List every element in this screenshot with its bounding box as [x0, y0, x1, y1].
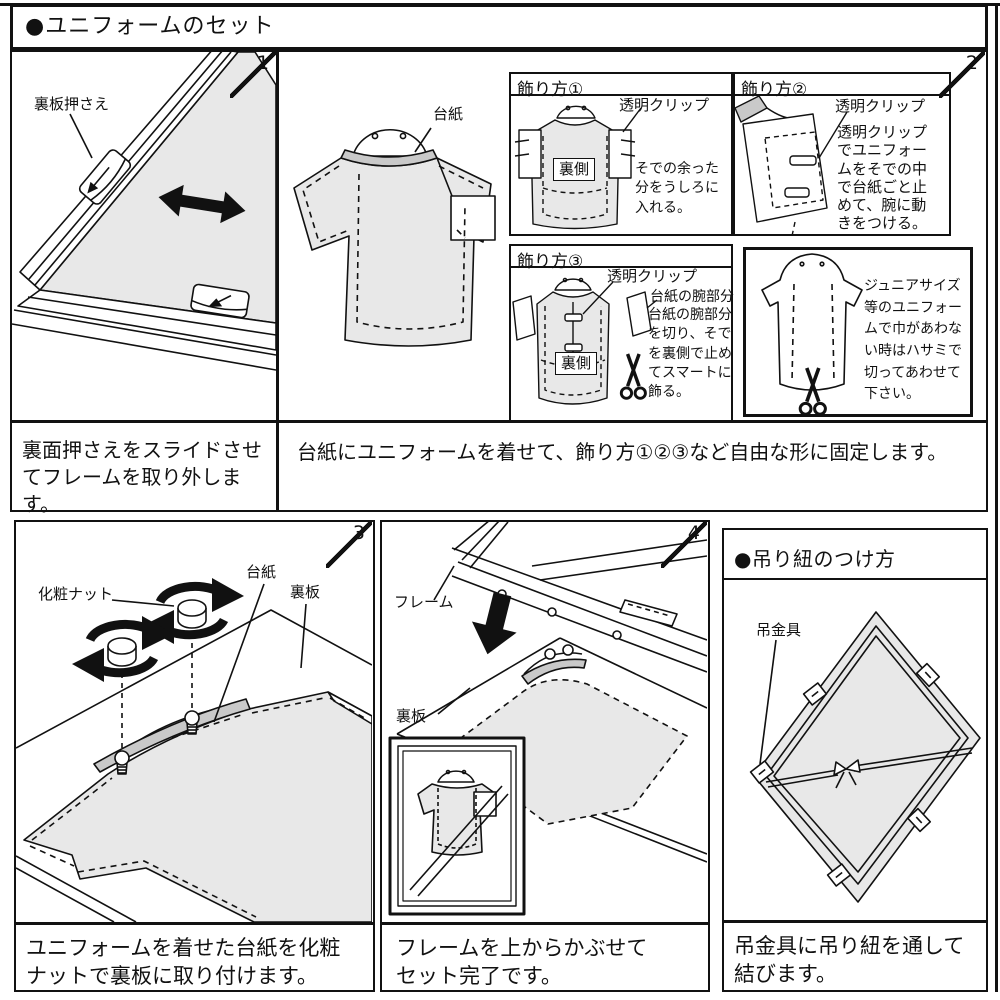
frame-label: フレーム	[394, 594, 454, 611]
leader-line	[301, 604, 306, 668]
panel2-corner-number: 2	[939, 52, 985, 98]
panel4-drawing: フレーム 裏板 4	[382, 522, 707, 922]
panel3-box: 化粧ナット 台紙 裏板 3 ユニフォームを着せた台紙を化粧ナットで裏板に取り付け…	[14, 520, 375, 992]
clip-label: 透明クリップ	[619, 97, 709, 114]
finished-frame-inset	[390, 738, 524, 914]
mount-attach-illustration	[16, 522, 372, 922]
panel4-caption: フレームを上からかぶせてセット完了です。	[382, 924, 662, 990]
hanging-caption: 吊金具に吊り紐を通して結びます。	[724, 922, 985, 988]
decorative-nut-icon	[108, 638, 136, 666]
scissors-icon	[621, 354, 645, 398]
mount-board-label: 台紙	[433, 106, 463, 123]
panel2-area: 台紙 飾り方①	[279, 52, 985, 420]
instruction-sheet: ●ユニフォームのセット	[0, 0, 1000, 1000]
deco1-text: そでの余った分をうしろに入れる。	[635, 160, 727, 218]
shirt-on-mount-illustration	[279, 52, 511, 420]
decorative-nut-label: 化粧ナット	[38, 586, 113, 603]
deco-method-2-header: 飾り方②	[735, 74, 949, 96]
panel2-caption: 台紙にユニフォームを着せて、飾り方①②③など自由な形に固定します。	[279, 422, 985, 509]
junior-size-box: ジュニアサイズ等のユニフォームで巾があわない時はハサミで切ってあわせて下さい。	[743, 247, 973, 417]
hanging-header: ●吊り紐のつけ方	[724, 530, 986, 580]
screw-icon	[115, 751, 129, 774]
back-side-tag: 裏側	[555, 352, 597, 375]
hanging-drawing: 吊金具	[724, 580, 985, 920]
hanging-panel-box: ●吊り紐のつけ方	[722, 528, 988, 992]
panel1-caption: 裏面押さえをスライドさせてフレームを取り外します。	[12, 422, 276, 509]
leader-line	[70, 114, 92, 158]
page-title: ●ユニフォームのセット	[10, 4, 988, 50]
deco-method-1-box: 飾り方①	[509, 72, 733, 236]
panel4-corner-number: 4	[661, 522, 707, 568]
backboard-label: 裏板	[396, 708, 426, 725]
deco-method-1-body: 透明クリップ 裏側 そでの余った分をうしろに入れる。	[511, 96, 731, 234]
back-side-tag: 裏側	[553, 158, 595, 181]
junior-text: ジュニアサイズ等のユニフォームで巾があわない時はハサミで切ってあわせて下さい。	[864, 276, 966, 406]
deco-method-3-body: 透明クリップ 台紙の腕部分 裏側 台紙の腕部分を切り、そでを裏側で止めてスマート…	[511, 268, 731, 420]
deco2-text: 透明クリップでユニフォームをそでの中で台紙ごと止めて、腕に動きをつける。	[837, 123, 933, 233]
deco3-text: 台紙の腕部分を切り、そでを裏側で止めてスマートに飾る。	[648, 306, 736, 403]
deco-method-2-body: 透明クリップ 透明クリップでユニフォームをそでの中で台紙ごと止めて、腕に動きをつ…	[735, 96, 949, 234]
leader-line	[438, 688, 470, 714]
backboard-label: 裏板	[290, 584, 320, 601]
panel3-drawing: 化粧ナット 台紙 裏板 3	[16, 522, 372, 922]
panel1-corner-number: 1	[230, 52, 276, 98]
hanging-hardware-label: 吊金具	[756, 622, 801, 639]
backboard-holder-label: 裏板押さえ	[34, 96, 109, 113]
junior-size-body: ジュニアサイズ等のユニフォームで巾があわない時はハサミで切ってあわせて下さい。	[746, 250, 970, 414]
clip-label: 透明クリップ	[607, 268, 697, 285]
frame-cover-illustration	[382, 522, 707, 922]
mount-board-label: 台紙	[246, 564, 276, 581]
deco-method-2-box: 飾り方②	[733, 72, 951, 236]
panel3-caption: ユニフォームを着せた台紙を化粧ナットで裏板に取り付けます。	[16, 924, 372, 990]
screw-icon	[185, 711, 199, 734]
deco-method-1-header: 飾り方①	[511, 74, 731, 96]
sheet-right-rule	[995, 3, 998, 992]
decorative-nut-icon	[178, 600, 206, 628]
panel4-box: フレーム 裏板 4 フレームを上からかぶせてセット完了です。	[380, 520, 710, 992]
leader-line	[760, 640, 776, 764]
top-block: 裏板押さえ 1 裏面押さえをスライドさせてフレームを取り外します。	[10, 50, 988, 512]
deco-method-3-box: 飾り方③	[509, 244, 733, 422]
mount-arm-label: 台紙の腕部分	[650, 290, 734, 305]
panel3-corner-number: 3	[326, 522, 372, 568]
deco-method-3-header: 飾り方③	[511, 246, 731, 268]
panel1-frame-back-drawing: 裏板押さえ 1	[12, 52, 276, 420]
clip-label: 透明クリップ	[835, 98, 925, 115]
